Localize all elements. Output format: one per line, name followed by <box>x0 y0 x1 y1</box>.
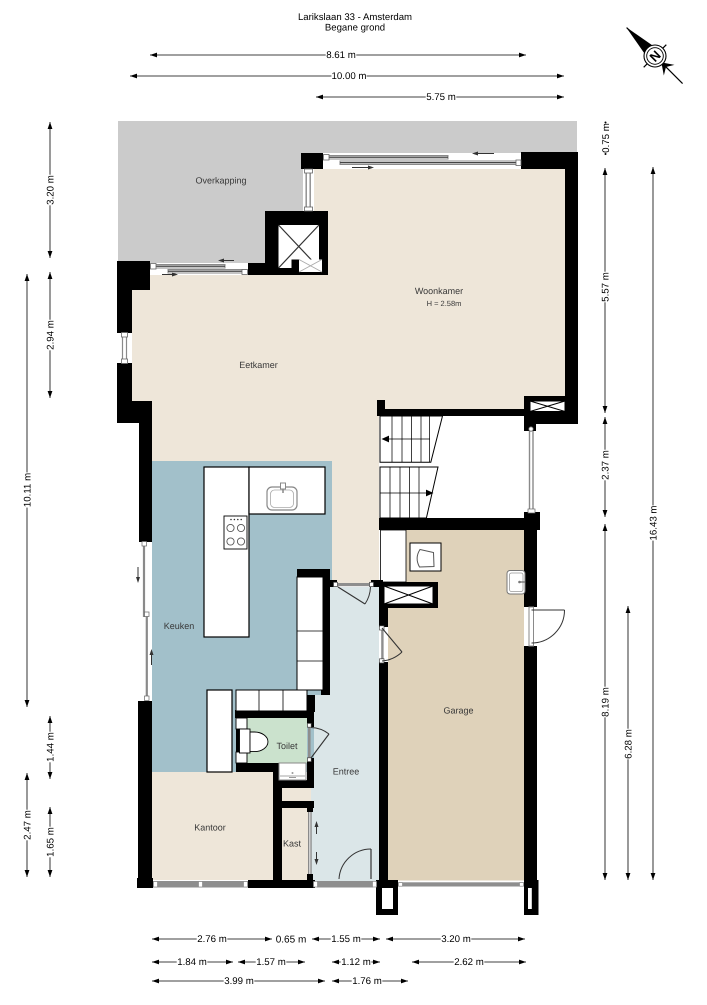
svg-text:1.44 m: 1.44 m <box>46 732 57 762</box>
svg-text:Larikslaan 33 - Amsterdam: Larikslaan 33 - Amsterdam <box>298 12 412 23</box>
svg-text:2.37 m: 2.37 m <box>601 450 612 480</box>
svg-text:10.00 m: 10.00 m <box>331 71 366 82</box>
svg-text:2.94 m: 2.94 m <box>46 320 57 350</box>
svg-text:8.19 m: 8.19 m <box>601 687 612 717</box>
svg-text:1.84 m: 1.84 m <box>177 957 207 968</box>
svg-text:5.75 m: 5.75 m <box>426 92 456 103</box>
svg-text:3.20 m: 3.20 m <box>46 175 57 205</box>
svg-text:16.43 m: 16.43 m <box>649 505 660 540</box>
svg-text:0.65 m: 0.65 m <box>276 934 307 945</box>
svg-text:0.75 m: 0.75 m <box>601 123 612 153</box>
svg-text:2.62 m: 2.62 m <box>454 957 484 968</box>
svg-text:10.11 m: 10.11 m <box>23 473 34 507</box>
svg-text:Toilet: Toilet <box>276 741 298 751</box>
svg-text:Eetkamer: Eetkamer <box>239 360 278 370</box>
svg-text:Woonkamer: Woonkamer <box>415 286 463 296</box>
svg-text:6.28 m: 6.28 m <box>624 729 635 759</box>
svg-text:1.55 m: 1.55 m <box>331 934 361 945</box>
svg-text:1.12 m: 1.12 m <box>341 957 371 968</box>
svg-text:Begane grond: Begane grond <box>325 22 385 33</box>
svg-text:3.20 m: 3.20 m <box>441 934 471 945</box>
svg-text:2.47 m: 2.47 m <box>23 810 34 840</box>
svg-text:H = 2.58m: H = 2.58m <box>427 299 462 308</box>
svg-text:Keuken: Keuken <box>164 621 195 631</box>
svg-text:3.99 m: 3.99 m <box>224 976 254 987</box>
svg-text:Kast: Kast <box>283 839 302 849</box>
svg-text:Entree: Entree <box>333 767 360 777</box>
svg-text:Garage: Garage <box>443 706 473 716</box>
svg-text:Overkapping: Overkapping <box>195 176 246 186</box>
svg-text:5.57 m: 5.57 m <box>601 272 612 302</box>
svg-text:1.65 m: 1.65 m <box>46 827 57 857</box>
svg-text:Kantoor: Kantoor <box>194 823 226 833</box>
svg-text:8.61 m: 8.61 m <box>326 50 356 61</box>
svg-text:2.76 m: 2.76 m <box>197 934 227 945</box>
svg-text:1.57 m: 1.57 m <box>256 957 286 968</box>
svg-text:1.76 m: 1.76 m <box>352 976 382 987</box>
